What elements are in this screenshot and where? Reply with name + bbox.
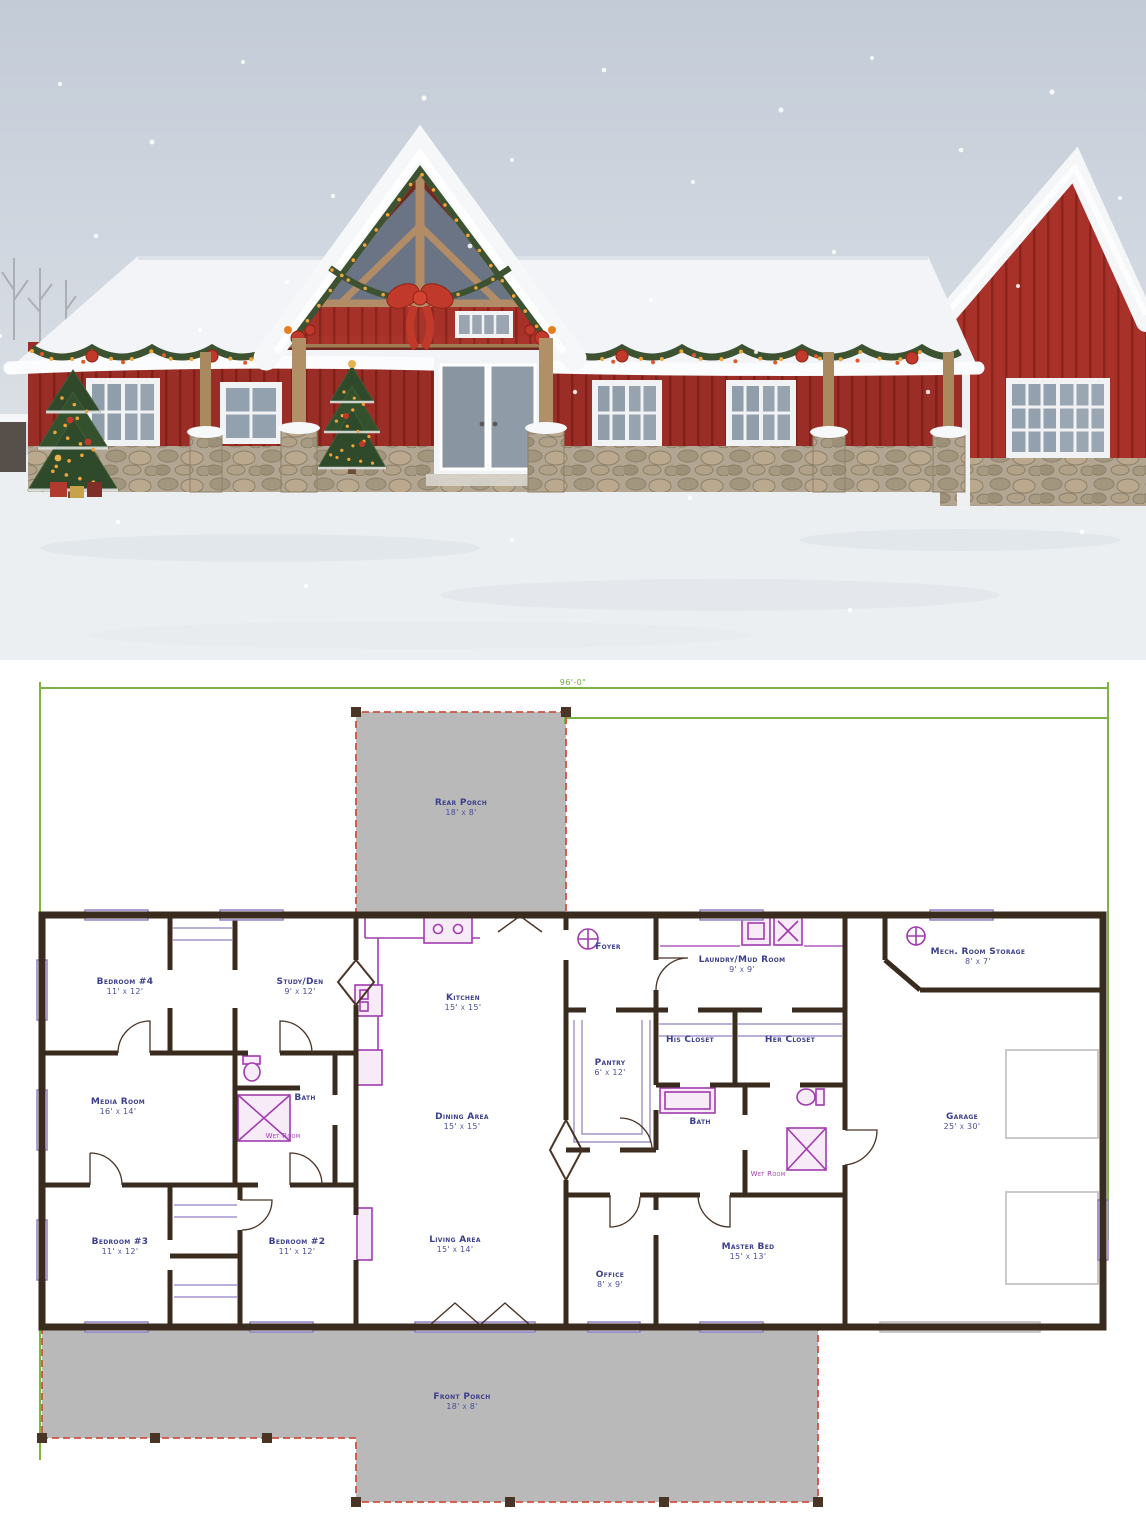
pin-image: 96'-0" Rear Porch18' x 8' Bedroom #411' … xyxy=(0,0,1146,1514)
front-porch-extension xyxy=(356,1438,818,1502)
window-right-1 xyxy=(592,380,662,446)
floor-plan: 96'-0" Rear Porch18' x 8' Bedroom #411' … xyxy=(0,660,1146,1514)
fixtures xyxy=(173,916,1098,1297)
floor-plan-svg xyxy=(0,660,1146,1514)
gable-transom-window xyxy=(455,311,513,338)
casement-markers xyxy=(420,916,542,1325)
window-left-2 xyxy=(220,382,282,444)
house-photo xyxy=(0,0,1146,660)
interior-walls xyxy=(42,915,1103,1327)
garage-window xyxy=(1006,378,1110,458)
outer-wall xyxy=(42,915,1103,1327)
front-porch-area xyxy=(42,1327,818,1438)
door-arcs xyxy=(90,958,877,1230)
rear-porch-area xyxy=(356,712,566,915)
window-right-2 xyxy=(726,380,796,446)
dimension-text-top: 96'-0" xyxy=(560,678,586,687)
left-structure xyxy=(0,414,30,472)
house-photo-svg xyxy=(0,0,1146,660)
wall-windows xyxy=(37,910,1108,1332)
